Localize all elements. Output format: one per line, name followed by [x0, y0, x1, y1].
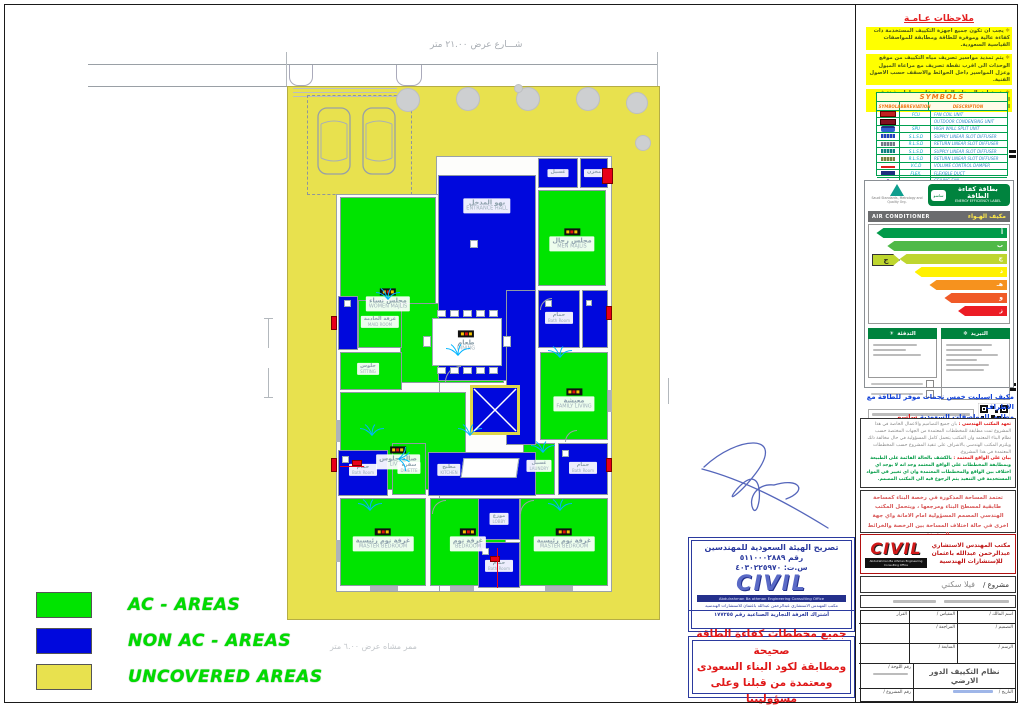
bath-fixture [470, 240, 478, 248]
road-edge-line [88, 64, 658, 65]
efficiency-bar: هـ [871, 280, 1007, 290]
room-name-en: Bath Room [548, 319, 570, 324]
refrigerant-pipe [497, 548, 498, 588]
energy-compliance-statement: جميع مخططات كفاءة الطاقة صحيحةومطابقة لك… [688, 636, 855, 698]
label-checkbox-row [871, 380, 934, 388]
label-title-en: ENERGY EFFICIENCY LABEL [949, 200, 1007, 204]
saso-pill: ساسو [931, 190, 946, 201]
section-tick [268, 318, 269, 348]
room-label-maid-room: غرفة الخادمةMAID ROOM [361, 316, 399, 328]
room-label-family-living: معيشةFAMILY LIVING [553, 388, 594, 411]
fcu-tag-icon [556, 528, 572, 535]
symbols-table: SYMBOLS SYMBOL ABBREVIATION DESCRIPTION … [876, 92, 1008, 176]
legend-swatch [36, 592, 92, 618]
window-marker [450, 586, 474, 591]
product-band: AIR CONDITIONER مكيف الهـواء [868, 211, 1010, 222]
section-tick [264, 318, 273, 319]
chair [489, 310, 498, 317]
symbol-icon-7 [877, 155, 899, 161]
fcu-unit-icon [606, 306, 612, 320]
tree-icon [576, 87, 600, 111]
chair [463, 310, 472, 317]
proj-no-cell: رقم المشروع / [859, 689, 913, 702]
bath-fixture [342, 456, 349, 463]
chair [450, 367, 459, 374]
window-marker [545, 586, 573, 591]
note-item: ✱ يتم تمديد مواسير تصريف مياه التكييف من… [866, 54, 1012, 85]
tree-icon [456, 87, 480, 111]
binding-mark [1009, 155, 1016, 158]
snowflake-icon: ❄ [963, 331, 968, 337]
symbol-icon-4 [877, 133, 899, 139]
room-label-bath-tr: حمامBath Room [545, 312, 573, 324]
section-tick [668, 378, 669, 404]
room-label-men-majlis: مجلس رجالMEN MAJLIS [549, 228, 594, 251]
symbol-row: FLEX.FLEXIBLE DUCT [877, 170, 1007, 177]
efficiency-bar-fill: د [915, 267, 1007, 277]
compliance-line: ومعتمدة من قبلنا وعلى مسؤوليتنا [689, 675, 854, 708]
room-label-bath-br: حمامBath Room [569, 462, 597, 474]
pledge-title: تعهد المكتب الهندسي : [959, 422, 1011, 427]
room-label-text: غسيل [547, 169, 568, 177]
supply-diffuser-icon [547, 499, 573, 512]
stamp-office-en: Abdulrahman Ba othman Engineering Consul… [697, 595, 846, 602]
window-marker [336, 540, 340, 562]
stair-core [470, 385, 520, 435]
room-name-en: LAUNDRY [529, 467, 548, 472]
efficiency-bar-fill: هـ [929, 280, 1007, 290]
symbol-icon-3 [877, 126, 899, 132]
symbol-desc: VOLUME CONTROL DAMPER [931, 163, 1007, 169]
room-label-text: بهو المدخلENTRANCE HALL [463, 198, 510, 213]
symbol-abbr: S.L.S.D [899, 148, 931, 154]
legend-swatch [36, 664, 92, 690]
note-item: ✱ يجب ان تكون جميع اجهزة التكييف المستخد… [866, 27, 1012, 50]
fcu-tag-icon [375, 528, 391, 535]
sheet-no-cell: رقم اللوحة / [859, 664, 913, 689]
chair [503, 336, 511, 347]
car-icon [361, 106, 397, 176]
symbol-row: R.L.S.DRETURN LINEAR SLOT DIFFUSER [877, 141, 1007, 148]
symbol-icon-5 [877, 141, 899, 147]
scale-cell: المقياس / [909, 611, 957, 624]
sun-icon: ☀ [889, 331, 894, 337]
supply-diffuser-icon [359, 424, 385, 437]
chair [423, 336, 431, 347]
symbol-desc: RETURN LINEAR SLOT DIFFUSER [931, 141, 1007, 147]
room-name-ar: مخزن [587, 170, 601, 176]
curb-ramp [396, 65, 422, 86]
stamp-office-ar: مكتب المهندس الاستشاري عبدالرحمن عبدالله… [689, 603, 854, 608]
legend-label: AC - AREAS [128, 595, 240, 615]
symbol-row: S.L.S.DSUPPLY LINEAR SLOT DIFFUSER [877, 148, 1007, 155]
engineers-authority-stamp: تصريح الهيئة السعودية للمهندسين رقم ٥١١٠… [688, 537, 855, 632]
room-label-text: غرفة نوم رئيسيةMASTER BEDROOM [353, 536, 414, 551]
symbol-desc: RETURN LINEAR SLOT DIFFUSER [931, 155, 1007, 161]
drawing-sheet: شـــارع عرض ٢١.٠٠ متر مجلس نساءWOMEN MAJ… [0, 0, 1024, 709]
room-label-text: غسيلLAUNDRY [526, 460, 551, 472]
saso-logo: Saudi Standards, Metrology and Quality O… [868, 184, 926, 205]
efficiency-bar: و [871, 293, 1007, 303]
room-label-text: مطبخKITCHEN [437, 464, 460, 476]
stamp-line1: تصريح الهيئة السعودية للمهندسين [689, 543, 854, 552]
date-cell: التاريخ / [913, 689, 1015, 702]
owner-cell: اسم المالك / [957, 611, 1015, 624]
symbol-row: OUTDOOR CONDENSING UNIT [877, 118, 1007, 125]
room-label-text: جلوسSITTING [357, 363, 379, 375]
empty-cell [859, 624, 909, 644]
location-row [860, 595, 1016, 608]
efficiency-bar: ز [871, 306, 1007, 316]
walkway-label: ممر مشاه عرض ٦.٠٠ متر [330, 642, 417, 651]
symbol-desc: HIGH WALL SPLIT UNIT [931, 126, 1007, 132]
project-value: فيلا سكني [941, 580, 975, 589]
window-marker [370, 586, 398, 591]
symbols-col-abbr: ABBREVIATION [899, 102, 929, 110]
decision-cell: القرار [859, 611, 909, 624]
symbol-desc: FAN COIL UNIT [931, 111, 1007, 117]
symbol-abbr: SPU [899, 126, 931, 132]
checkbox-icon [926, 380, 934, 388]
fcu-unit-icon [606, 458, 612, 472]
room-name-en: WOMEN MAJLIS [369, 305, 407, 311]
room-label-laundry: غسيلLAUNDRY [526, 460, 551, 472]
office-line3: للإستشارات الهندسية [931, 558, 1011, 566]
follow-cell: المتابعة / [909, 644, 957, 664]
compliance-line: ومطابقة لكود البناء السعودى [689, 659, 854, 675]
room-name-en: FAMILY LIVING [556, 405, 591, 411]
fcu-tag-icon [460, 528, 476, 535]
room-name-en: BEDROOM [453, 545, 483, 551]
symbols-title: SYMBOLS [877, 93, 1007, 102]
supply-diffuser-icon [398, 446, 411, 472]
section-tick [268, 368, 269, 398]
area-statement-box: تعتمد المساحة المذكورة في رخصة البناء كم… [860, 490, 1016, 533]
fcu-unit-icon [490, 556, 500, 562]
design-cell: التصميم / [957, 624, 1015, 644]
civil-logo: CIVIL [689, 573, 854, 594]
bath-fixture [586, 300, 592, 306]
car-icon [316, 106, 352, 176]
room-label-text: موزعLOBBY [490, 513, 509, 525]
dimension-tick [286, 52, 287, 86]
review-cell: المراجعة / [909, 624, 957, 644]
efficiency-bars: أبجدهـوزج [868, 224, 1010, 324]
symbol-row: FCUFAN COIL UNIT [877, 111, 1007, 118]
supply-diffuser-icon [375, 288, 401, 301]
efficiency-bar-fill: و [944, 293, 1007, 303]
room-name-en: MASTER BEDROOM [356, 545, 411, 551]
room-label-sitting: جلوسSITTING [357, 363, 379, 375]
room-label-master-bedroom-right: غرفة نوم رئيسيةMASTER BEDROOM [534, 528, 595, 551]
room-label-text: معيشةFAMILY LIVING [553, 396, 594, 411]
room-name-en: Bath Room [572, 469, 594, 474]
fcu-unit-icon [602, 168, 613, 184]
fcu-tag-icon [458, 330, 474, 337]
legend-item: AC - AREAS [36, 592, 240, 618]
bath-fixture [344, 300, 351, 307]
supply-diffuser-icon [445, 344, 471, 357]
room-name-en: MASTER BEDROOM [537, 545, 592, 551]
room-label-text: غرفة نوم رئيسيةMASTER BEDROOM [534, 536, 595, 551]
cooling-title: التبريد [971, 331, 988, 337]
window-marker [336, 420, 340, 442]
legend-swatch [36, 628, 92, 654]
room-name-en: LOBBY [493, 520, 506, 525]
symbol-icon-8 [877, 163, 899, 169]
symbol-icon-9 [877, 170, 899, 176]
room-label-lobby: موزعLOBBY [490, 513, 509, 525]
legend-label: NON AC - AREAS [128, 631, 291, 651]
curb-ramp [289, 65, 313, 86]
room-name-en: MAID ROOM [364, 323, 396, 328]
room-label-text: حمامBath Room [545, 312, 573, 324]
label-title-ar: بطاقة كفاءة الطاقة [949, 186, 1007, 200]
product-name-ar: مكيف الهـواء [968, 213, 1006, 220]
room-name-en: SITTING [360, 370, 376, 375]
legend-label: UNCOVERED AREAS [128, 667, 323, 687]
room-name-en: ENTRANCE HALL [466, 207, 507, 213]
tree-icon [514, 84, 523, 93]
symbol-abbr [899, 118, 931, 124]
room-name-en: Bath Room [488, 567, 510, 572]
kitchen-counter [461, 458, 520, 478]
symbol-abbr: R.L.S.D [899, 155, 931, 161]
binding-mark [1009, 150, 1016, 153]
chair [437, 367, 446, 374]
symbol-desc: SUPPLY LINEAR SLOT DIFFUSER [931, 148, 1007, 154]
room-label-text: غرفة نومBEDROOM [450, 536, 486, 551]
symbol-row: S.L.S.DSUPPLY LINEAR SLOT DIFFUSER [877, 133, 1007, 140]
symbol-row: R.L.S.DRETURN LINEAR SLOT DIFFUSER [877, 155, 1007, 162]
chair [476, 367, 485, 374]
energy-efficiency-label: Saudi Standards, Metrology and Quality O… [864, 180, 1014, 388]
draw-cell: الرسم / [957, 644, 1015, 664]
heating-title: التدفئة [897, 331, 916, 337]
room-label-entrance-hall: بهو المدخلENTRANCE HALL [463, 198, 510, 213]
room-wc-tr [582, 290, 608, 348]
tree-icon [635, 135, 651, 151]
room-label-text: حمامBath Room [569, 462, 597, 474]
window-marker [608, 390, 612, 412]
office-civil-logo: CIVIL Abdulrahman Ba othman Engineering … [865, 541, 927, 568]
room-name-en: KITCHEN [440, 471, 457, 476]
chair [476, 310, 485, 317]
symbol-desc: SUPPLY LINEAR SLOT DIFFUSER [931, 133, 1007, 139]
dimension-tick [657, 52, 658, 86]
symbols-col-symbol: SYMBOL [877, 102, 899, 110]
street-label: شـــارع عرض ٢١.٠٠ متر [430, 40, 522, 50]
empty-cell [859, 644, 909, 664]
efficiency-bar-fill: أ [876, 228, 1007, 238]
efficiency-bar-fill: ج [900, 254, 1007, 264]
room-label-text: غرفة الخادمةMAID ROOM [361, 316, 399, 328]
office-line2: عبدالرحمن عبدالله باعثمان [931, 550, 1011, 558]
symbol-abbr: S.L.S.D [899, 133, 931, 139]
label-title-box: ساسو بطاقة كفاءة الطاقة ENERGY EFFICIENC… [928, 184, 1010, 206]
chair [463, 367, 472, 374]
symbol-abbr: FCU [899, 111, 931, 117]
fcu-tag-icon [564, 228, 580, 235]
site-statement-title: بيان على الواقع المعتمد : [953, 456, 1011, 461]
fcu-unit-icon [331, 458, 337, 472]
room-label-kitchen: مطبخKITCHEN [437, 464, 460, 476]
heating-panel: التدفئة☀ [868, 328, 937, 400]
room-label-bedroom-middle: غرفة نومBEDROOM [450, 528, 486, 551]
supply-diffuser-icon [357, 499, 383, 512]
symbol-desc: FLEXIBLE DUCT [931, 170, 1007, 176]
saso-triangle-icon [890, 184, 904, 196]
efficiency-bar: ب [871, 241, 1007, 251]
symbol-icon-2 [877, 118, 899, 124]
symbol-icon-6 [877, 148, 899, 154]
efficiency-bar-fill: ز [958, 306, 1007, 316]
symbol-icon-1 [877, 111, 899, 117]
title-block-table: اسم المالك / المقياس / القرار التصميم / … [860, 610, 1016, 702]
room-label-text: مجلس رجالMEN MAJLIS [549, 236, 594, 251]
room-name-en: MEN MAJLIS [552, 245, 591, 251]
tree-icon [626, 92, 648, 114]
signature [690, 425, 845, 537]
symbols-col-desc: DESCRIPTION [929, 102, 1007, 110]
room-name-en: Bath Room [352, 471, 374, 476]
fcu-tag-icon [566, 388, 582, 395]
bath-fixture [562, 450, 569, 457]
sheet-name-cell: نظام التكييف الدور الارضي [913, 664, 1015, 689]
compliance-line: جميع مخططات كفاءة الطاقة صحيحة [689, 626, 854, 659]
efficiency-bar: د [871, 267, 1007, 277]
symbol-desc: OUTDOOR CONDENSING UNIT [931, 118, 1007, 124]
legend-item: UNCOVERED AREAS [36, 664, 323, 690]
efficiency-bar: أ [871, 228, 1007, 238]
notes-title: ملاحظات عـامـة [866, 14, 1012, 24]
symbol-abbr: R.L.S.D [899, 141, 931, 147]
legend-item: NON AC - AREAS [36, 628, 291, 654]
section-tick [264, 397, 273, 398]
efficiency-bar-fill: ب [887, 241, 1007, 251]
bath-fixture [545, 300, 552, 307]
stamp-chamber-line: أشتراك الغرفة التجارية الصناعية رقم ١٧٧٢… [689, 610, 854, 618]
office-pledge-box: تعهد المكتب الهندسي : بان جميع التصاميم … [860, 418, 1016, 488]
supply-diffuser-icon [547, 346, 573, 359]
room-name-ar: غسيل [550, 170, 565, 176]
symbol-abbr: FLEX. [899, 170, 931, 176]
supply-diffuser-icon [530, 441, 556, 454]
symbol-row: V.C.DVOLUME CONTROL DAMPER [877, 163, 1007, 170]
stamp-number: رقم ٥١١٠٠٠٢٨٨٩ [689, 553, 854, 562]
symbol-abbr: V.C.D [899, 163, 931, 169]
project-row: مشروع / فيلا سكني [860, 576, 1016, 593]
consultant-office-box: مكتب المهندس الاستشاري عبدالرحمن عبدالله… [860, 534, 1016, 574]
binding-mark [1009, 388, 1016, 391]
symbols-header: SYMBOL ABBREVIATION DESCRIPTION [877, 102, 1007, 111]
office-line1: مكتب المهندس الاستشاري [931, 542, 1011, 550]
tree-icon [396, 88, 420, 112]
cooling-panel: التبريد❄ [941, 328, 1010, 400]
fcu-unit-icon [331, 316, 337, 330]
saso-authority-text: Saudi Standards, Metrology and Quality O… [868, 197, 926, 205]
chair [489, 367, 498, 374]
chair [450, 310, 459, 317]
right-panel-divider [855, 4, 856, 703]
chair [437, 310, 446, 317]
project-label: مشروع / [983, 581, 1009, 589]
symbol-row: SPUHIGH WALL SPLIT UNIT [877, 126, 1007, 133]
product-name-en: AIR CONDITIONER [872, 214, 930, 220]
room-label-master-bedroom-left: غرفة نوم رئيسيةMASTER BEDROOM [353, 528, 414, 551]
refrigerant-pipe [340, 466, 364, 467]
room-label-store-a: غسيل [547, 169, 568, 177]
